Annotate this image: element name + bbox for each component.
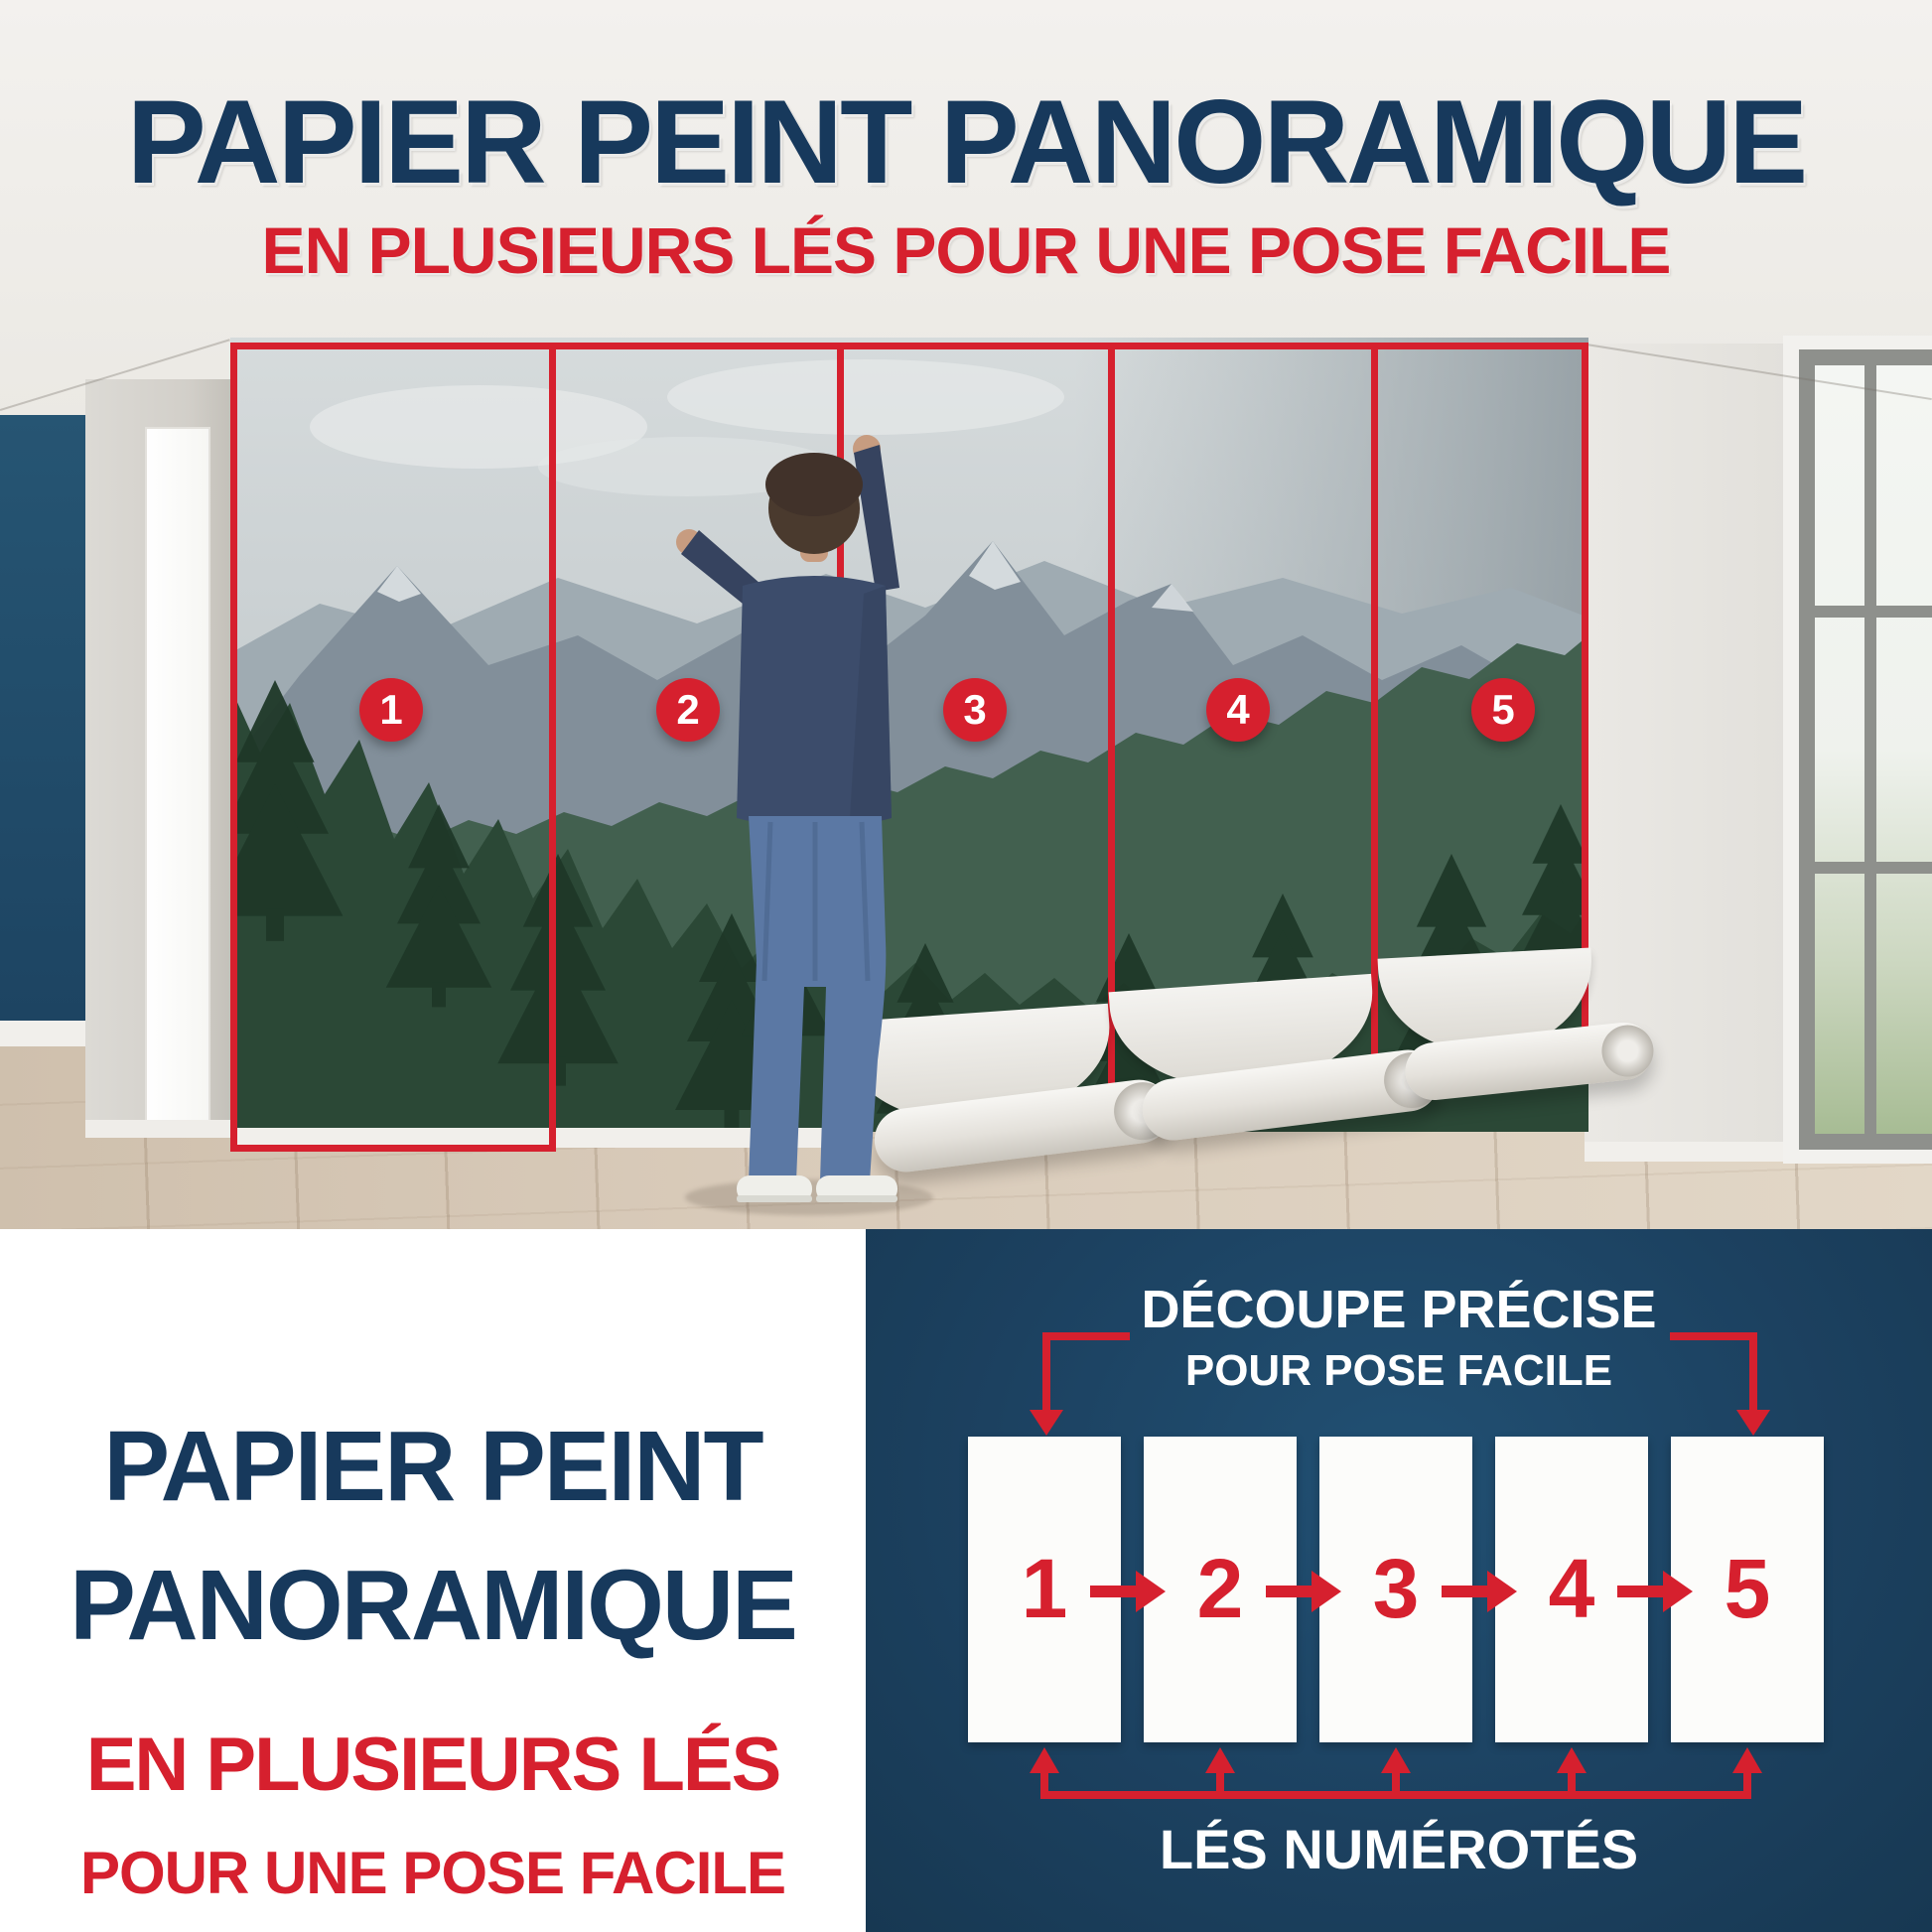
door-opening bbox=[145, 427, 210, 1124]
infographic-canvas: 1 2 3 4 5 PAPIER PEINT PANORAMIQUE EN PL… bbox=[0, 0, 1932, 1932]
strip-order-diagram: DÉCOUPE PRÉCISE POUR POSE FACILE 1 2 3 4… bbox=[866, 1229, 1932, 1932]
baseboard bbox=[85, 1120, 232, 1138]
strip-divider-4-5 bbox=[1371, 343, 1378, 1077]
strip-number: 5 bbox=[1491, 686, 1514, 733]
window-mullion bbox=[1864, 365, 1876, 1134]
blue-accent-wall bbox=[0, 415, 87, 1023]
installer-figure bbox=[625, 425, 1003, 1209]
strip-outline-top bbox=[230, 343, 1588, 349]
diagram-caption: LÉS NUMÉROTÉS bbox=[866, 1817, 1932, 1881]
strip-number-badge: 1 bbox=[359, 678, 423, 742]
bracket-line bbox=[1392, 1771, 1400, 1793]
strip1-outline-bottom bbox=[230, 1145, 556, 1152]
up-arrow-icon bbox=[1381, 1747, 1411, 1773]
strip-number-badge: 5 bbox=[1471, 678, 1535, 742]
bracket-line bbox=[1670, 1332, 1757, 1340]
diagram-strip-number: 5 bbox=[1671, 1547, 1824, 1630]
strip-number: 1 bbox=[379, 686, 402, 733]
strip-outline-left bbox=[230, 343, 237, 1152]
up-arrow-icon bbox=[1732, 1747, 1762, 1773]
strip-divider-1-2 bbox=[549, 343, 556, 1152]
right-arrow-icon bbox=[1311, 1571, 1341, 1612]
installation-photo: 1 2 3 4 5 PAPIER PEINT PANORAMIQUE EN PL… bbox=[0, 0, 1932, 1229]
down-arrow-icon bbox=[1030, 1410, 1063, 1436]
bracket-line bbox=[1743, 1771, 1751, 1793]
window-mullion bbox=[1815, 862, 1932, 874]
down-arrow-icon bbox=[1736, 1410, 1770, 1436]
strip-number-badge: 4 bbox=[1206, 678, 1270, 742]
right-arrow-icon bbox=[1617, 1586, 1663, 1597]
strip-number: 4 bbox=[1226, 686, 1249, 733]
bracket-line bbox=[1040, 1771, 1048, 1793]
bottom-left-text-block: PAPIER PEINT PANORAMIQUE EN PLUSIEURS LÉ… bbox=[0, 1229, 866, 1932]
right-arrow-icon bbox=[1266, 1586, 1311, 1597]
product-subtitle-line2: POUR UNE POSE FACILE bbox=[0, 1839, 866, 1907]
window-mullion bbox=[1815, 606, 1932, 618]
bracket-line bbox=[1042, 1332, 1130, 1340]
bracket-line bbox=[1568, 1771, 1576, 1793]
bracket-line bbox=[1216, 1771, 1224, 1793]
product-title-line1: PAPIER PEINT bbox=[0, 1410, 866, 1524]
bracket-line bbox=[1042, 1332, 1050, 1412]
product-title-line2: PANORAMIQUE bbox=[0, 1549, 866, 1663]
right-arrow-icon bbox=[1487, 1571, 1517, 1612]
up-arrow-icon bbox=[1557, 1747, 1587, 1773]
diagram-heading-line1: DÉCOUPE PRÉCISE bbox=[866, 1279, 1932, 1340]
up-arrow-icon bbox=[1030, 1747, 1059, 1773]
bracket-line bbox=[1749, 1332, 1757, 1412]
right-arrow-icon bbox=[1090, 1586, 1136, 1597]
product-subtitle-line1: EN PLUSIEURS LÉS bbox=[0, 1722, 866, 1808]
main-title: PAPIER PEINT PANORAMIQUE bbox=[0, 73, 1932, 210]
baseboard bbox=[0, 1021, 87, 1046]
strip-divider-3-4 bbox=[1108, 343, 1115, 1097]
right-arrow-icon bbox=[1136, 1571, 1166, 1612]
main-subtitle: EN PLUSIEURS LÉS POUR UNE POSE FACILE bbox=[0, 212, 1932, 288]
right-arrow-icon bbox=[1663, 1571, 1693, 1612]
diagram-heading-line2: POUR POSE FACILE bbox=[866, 1346, 1932, 1396]
up-arrow-icon bbox=[1205, 1747, 1235, 1773]
right-arrow-icon bbox=[1442, 1586, 1487, 1597]
